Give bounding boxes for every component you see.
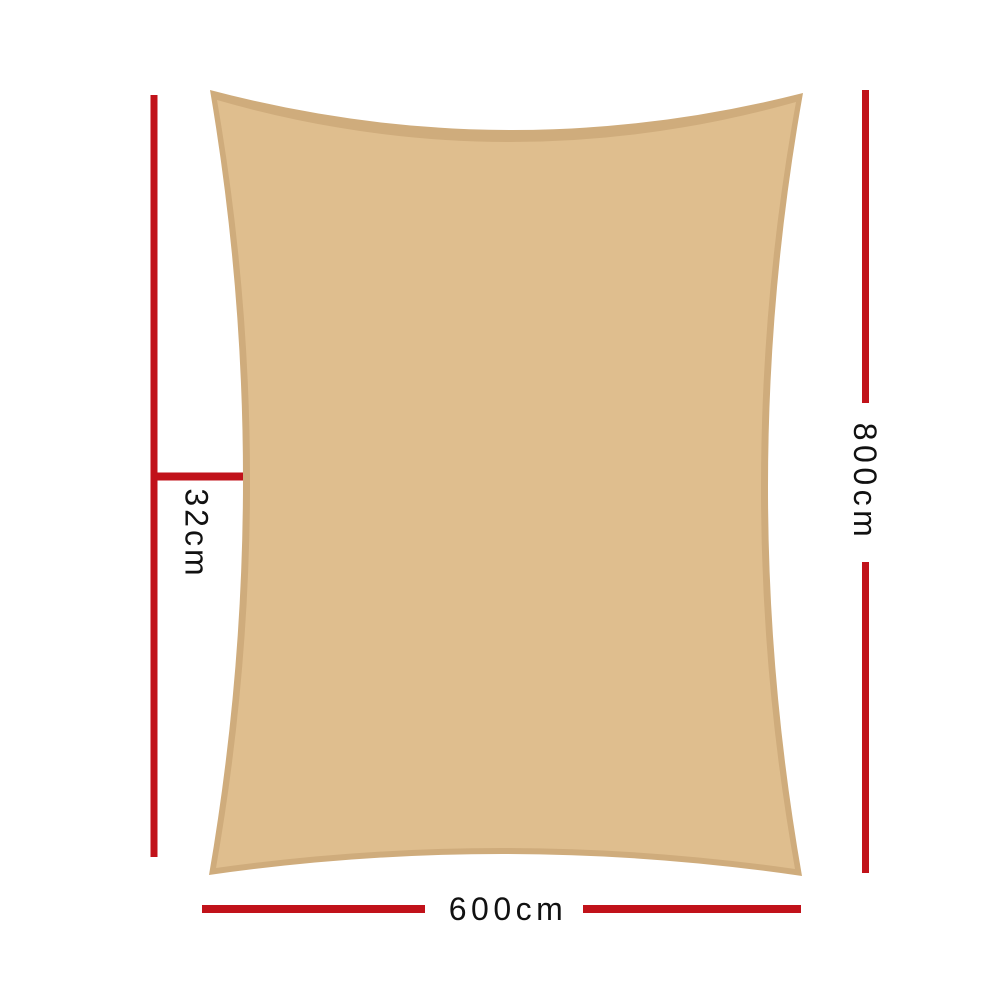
svg-text:600cm: 600cm — [449, 891, 568, 927]
svg-text:800cm: 800cm — [847, 423, 883, 542]
svg-text:32cm: 32cm — [179, 488, 215, 578]
